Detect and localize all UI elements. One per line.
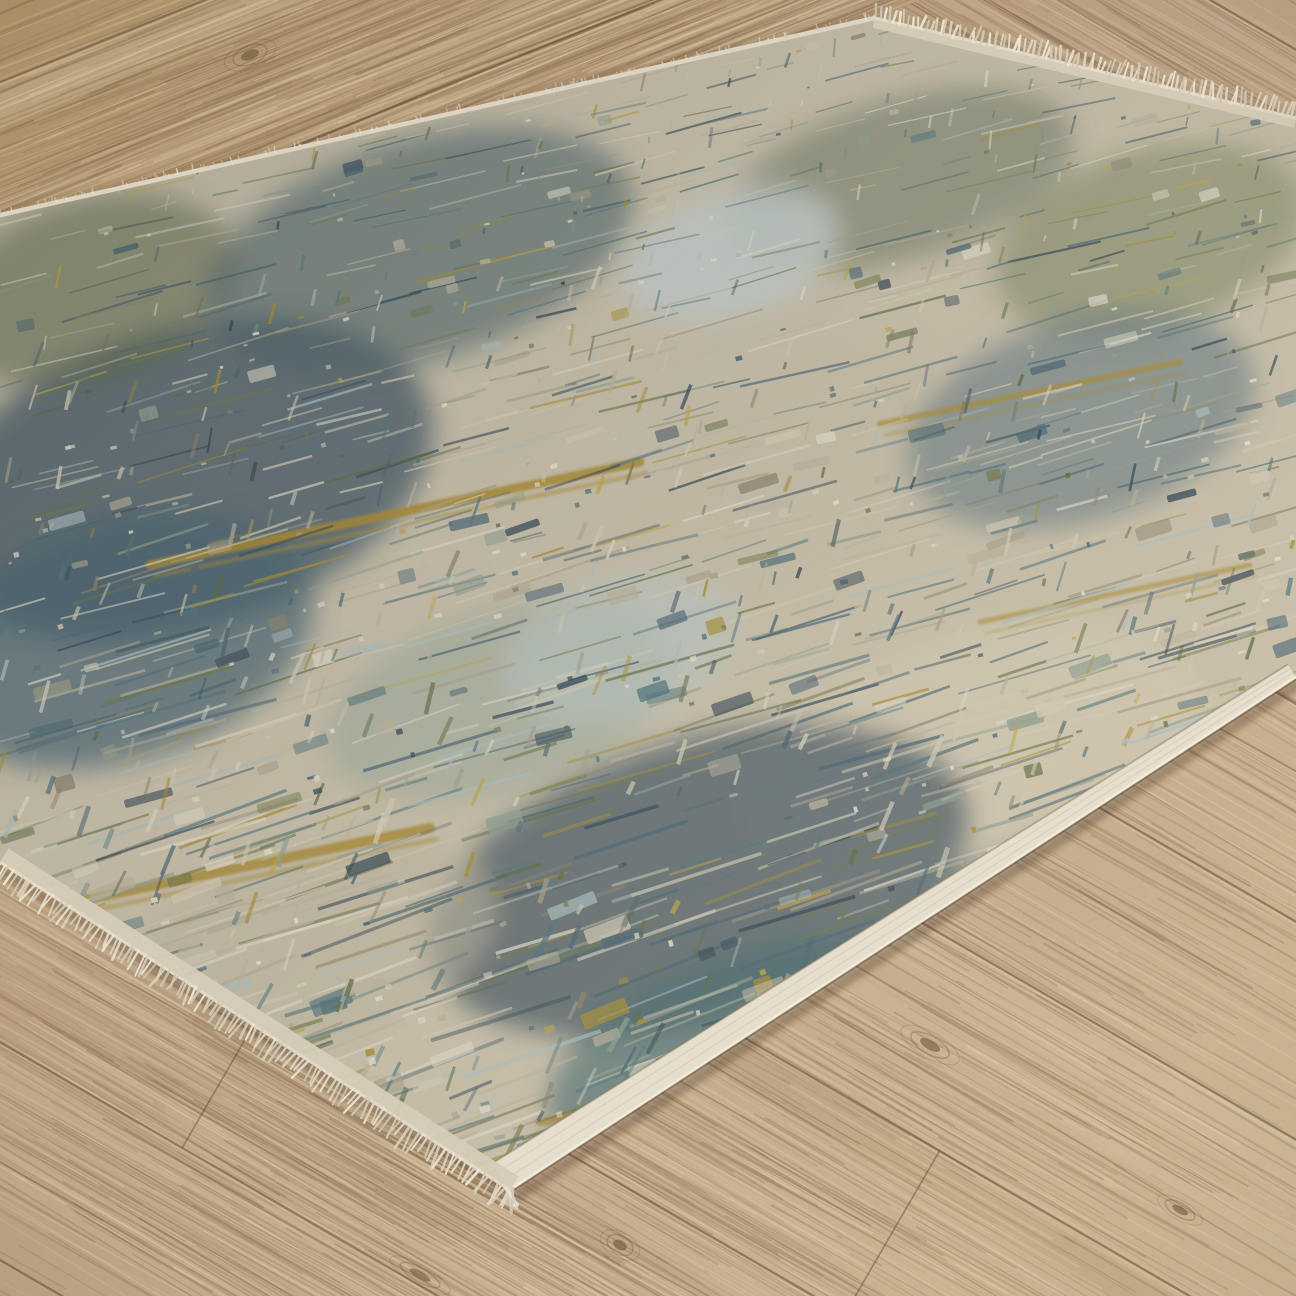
photo-vignette [0, 0, 1296, 1296]
rug-on-wood-floor-photo [0, 0, 1296, 1296]
product-photo-figure: Angled close-up photograph of an abstrac… [0, 0, 1296, 1296]
